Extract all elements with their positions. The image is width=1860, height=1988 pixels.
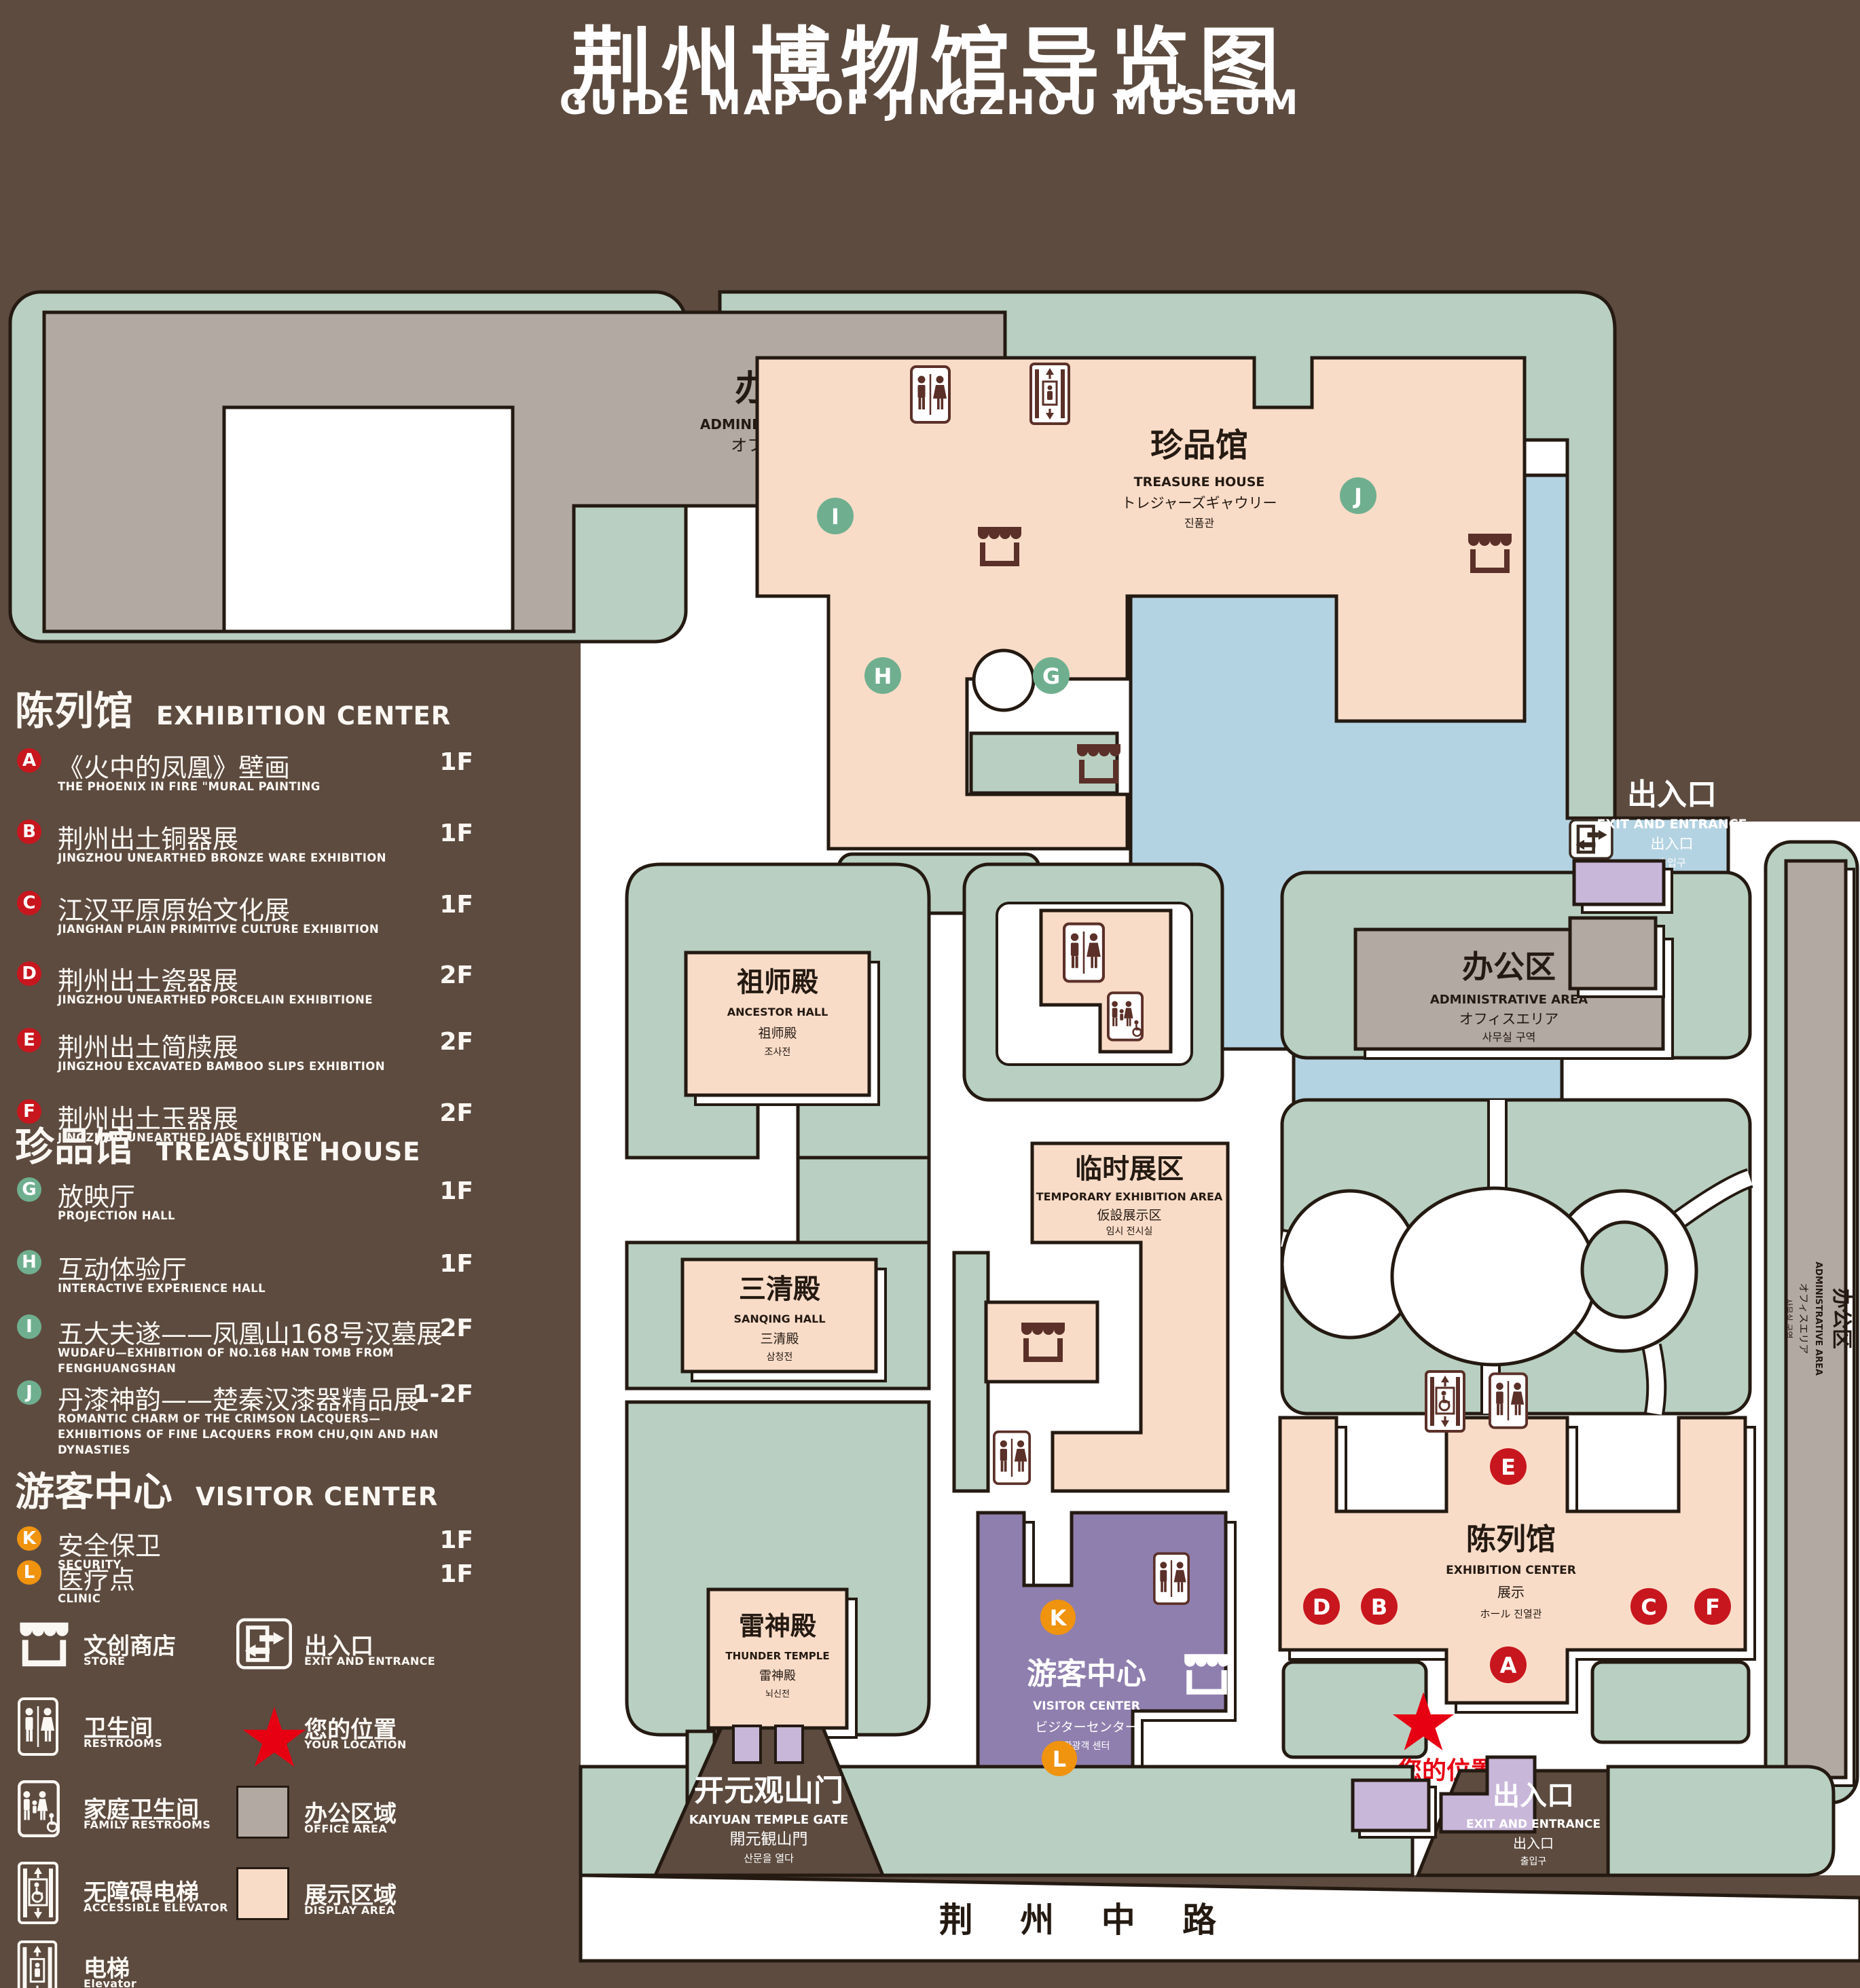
marker-F: F <box>1705 1594 1720 1620</box>
marker-B: B <box>1371 1594 1387 1620</box>
marker-L: L <box>1053 1746 1066 1772</box>
marker-badge: G <box>17 1177 41 1202</box>
sanqing-hall-label-zh: 三清殿 <box>739 1274 820 1305</box>
south-lawn <box>1608 1767 1834 1875</box>
svg-text:ADMINISTRATIVE AREA: ADMINISTRATIVE AREA <box>1813 1262 1823 1376</box>
sanqing-hall-label-kr: 삼청전 <box>767 1352 793 1363</box>
admin-center-label-en: ADMINISTRATIVE AREA <box>1430 993 1588 1007</box>
marker-E: E <box>1501 1454 1516 1480</box>
marker-C: C <box>1641 1594 1656 1620</box>
kaiyuan-gate-label-zh: 开元观山门 <box>694 1773 843 1808</box>
restrooms-icon <box>1490 1374 1527 1427</box>
svg-text:办公区: 办公区 <box>1829 1288 1853 1349</box>
floor-badge: 1F <box>439 891 473 919</box>
floor-badge: 1F <box>439 748 473 776</box>
sanqing-hall-label-en: SANQING HALL <box>733 1312 825 1325</box>
treasure-house-curved-notch <box>974 650 1034 710</box>
exhibition-center-label-en: EXHIBITION CENTER <box>1446 1564 1576 1577</box>
exit-se-label-kr: 출입구 <box>1520 1856 1547 1867</box>
garden-strip <box>798 1158 929 1242</box>
marker-badge: B <box>17 820 41 844</box>
treasure-house-green-bar <box>971 733 1117 793</box>
gate-building <box>1353 1780 1429 1830</box>
marker-badge: L <box>17 1560 41 1585</box>
kaiyuan-gate-label-en: KAIYUAN TEMPLE GATE <box>689 1813 849 1827</box>
legend-panel: 陈列馆 EXHIBITION CENTER A 《火中的凤凰》壁画 THE PH… <box>0 0 503 1988</box>
section-title-en: VISITOR CENTER <box>196 1482 438 1511</box>
visitor-center-label-zh: 游客中心 <box>1027 1657 1146 1691</box>
marker-J: J <box>1353 483 1362 509</box>
floor-badge: 1F <box>439 1560 473 1588</box>
legend-section-treasure-house: 珍品馆 TREASURE HOUSE <box>15 1115 420 1172</box>
gate-building <box>1574 861 1664 904</box>
location-star-icon <box>242 1707 307 1768</box>
marker-badge: H <box>17 1250 41 1274</box>
floor-badge: 2F <box>439 1314 473 1342</box>
restrooms-icon <box>17 1697 59 1756</box>
store-building <box>986 1302 1097 1382</box>
thunder-temple-label-kr: 뇌신전 <box>765 1689 790 1699</box>
svg-text:オフィスエリア: オフィスエリア <box>1798 1283 1810 1355</box>
floor-badge: 1F <box>439 820 473 847</box>
display-area-swatch <box>236 1867 289 1920</box>
section-title-en: TREASURE HOUSE <box>156 1137 420 1166</box>
floor-badge: 2F <box>439 961 473 989</box>
tea-label-zh: 临时展区 <box>1075 1154 1184 1185</box>
exit-ne-label-zh: 出入口 <box>1627 777 1717 812</box>
office-area-swatch <box>236 1786 289 1839</box>
marker-G: G <box>1042 663 1060 689</box>
family-restrooms-icon <box>1108 993 1142 1039</box>
exit-ne-label-jp: 出入口 <box>1651 836 1694 852</box>
marker-badge: J <box>17 1380 41 1405</box>
restrooms-icon <box>1154 1553 1188 1604</box>
accessible-elevator-icon <box>1426 1372 1464 1431</box>
restrooms-icon <box>911 367 949 422</box>
marker-badge: E <box>17 1028 41 1052</box>
sanqing-hall-label-jp: 三清殿 <box>760 1331 799 1346</box>
gate-pillar <box>776 1726 803 1763</box>
marker-A: A <box>1500 1653 1517 1678</box>
section-title-zh: 游客中心 <box>15 1460 172 1517</box>
ancestor-hall-label-jp: 祖师殿 <box>758 1026 797 1041</box>
exit-se-label-en: EXIT AND ENTRANCE <box>1466 1818 1601 1831</box>
legend-symbol-exit: 出入口 EXIT AND ENTRANCE <box>236 1618 292 1672</box>
legend-symbol-elevator: 电梯 Elevator <box>17 1940 58 1988</box>
legend-symbol-restrooms: 卫生间 RESTROOMS <box>17 1697 59 1759</box>
tea-green-bar <box>954 1253 988 1491</box>
admin-center-label-kr: 사무실 구역 <box>1482 1031 1536 1044</box>
marker-I: I <box>831 504 839 530</box>
marker-H: H <box>874 663 892 689</box>
tea-label-en: TEMPORARY EXHIBITION AREA <box>1036 1190 1223 1203</box>
exit-ne-label-en: EXIT AND ENTRANCE <box>1597 817 1747 832</box>
gate-pillar <box>733 1726 761 1763</box>
accessible-elevator-icon <box>17 1862 59 1924</box>
treasure-house-label-zh: 珍品馆 <box>1150 426 1248 464</box>
thunder-temple-label-en: THUNDER TEMPLE <box>725 1650 829 1662</box>
kaiyuan-gate-label-jp: 開元観山門 <box>730 1830 808 1848</box>
thunder-temple-label-jp: 雷神殿 <box>759 1669 796 1683</box>
store-icon <box>17 1619 71 1670</box>
exhibition-south-lawn <box>1283 1662 1426 1757</box>
marker-badge: D <box>17 961 41 986</box>
thunder-temple-label-zh: 雷神殿 <box>739 1611 816 1641</box>
floor-badge: 2F <box>439 1028 473 1056</box>
elevator-icon <box>17 1940 58 1988</box>
visitor-center-label-en: VISITOR CENTER <box>1033 1699 1140 1713</box>
ancestor-hall-label-zh: 祖师殿 <box>737 967 818 998</box>
floor-badge: 1-2F <box>412 1380 473 1408</box>
floor-badge: 1F <box>439 1526 473 1554</box>
restrooms-icon <box>1064 924 1104 982</box>
tea-label-kr: 임시 전시실 <box>1106 1226 1153 1237</box>
marker-badge: I <box>17 1314 41 1339</box>
treasure-house-label-kr: 진품관 <box>1184 517 1214 530</box>
kaiyuan-gate-label-kr: 산문을 열다 <box>744 1852 794 1864</box>
svg-text:사무실 구역: 사무실 구역 <box>1784 1298 1793 1338</box>
marker-badge: A <box>17 748 41 773</box>
tea-label-jp: 仮設展示区 <box>1097 1208 1161 1223</box>
legend-symbol-store: 文创商店 STORE <box>17 1619 71 1672</box>
road-label: 荆 州 中 路 <box>939 1900 1234 1940</box>
floor-badge: 2F <box>439 1099 473 1127</box>
exhibition-center-label-jp: 展示 <box>1497 1584 1525 1600</box>
exit-se-label-zh: 出入口 <box>1493 1780 1574 1811</box>
restrooms-icon <box>994 1432 1029 1484</box>
visitor-center-label-jp: ビジターセンター <box>1035 1720 1138 1735</box>
legend-symbol-your-location: 您的位置 YOUR LOCATION <box>242 1707 307 1771</box>
legend-symbol-accessible-elevator: 无障碍电梯 ACCESSIBLE ELEVATOR <box>17 1862 59 1927</box>
exhibition-center-label-jpkr: ホール 진열관 <box>1480 1608 1542 1620</box>
floor-badge: 1F <box>439 1250 473 1278</box>
exhibition-center-label-zh: 陈列馆 <box>1466 1522 1556 1557</box>
treasure-house-label-jp: トレジャーズギャウリー <box>1122 495 1277 511</box>
ancestor-hall-label-kr: 조사전 <box>765 1047 791 1058</box>
section-title-en: EXHIBITION CENTER <box>156 701 451 731</box>
small-office-building <box>1570 918 1656 989</box>
exhibition-south-lawn <box>1592 1662 1749 1742</box>
marker-K: K <box>1050 1605 1068 1631</box>
legend-section-visitor-center: 游客中心 VISITOR CENTER <box>15 1460 438 1517</box>
south-lawn <box>823 1767 1412 1875</box>
marker-badge: K <box>17 1526 41 1551</box>
guide-map-poster: 荆州博物馆导览图 GUIDE MAP OF JINGZHOU MUSEUM <box>0 0 1860 1988</box>
floor-badge: 1F <box>439 1177 473 1205</box>
elevator-icon <box>1031 364 1069 424</box>
marker-D: D <box>1313 1594 1331 1620</box>
marker-badge: C <box>17 891 41 915</box>
family-restrooms-icon <box>17 1780 60 1837</box>
admin-center-label-zh: 办公区 <box>1462 949 1556 985</box>
ancestor-hall-label-en: ANCESTOR HALL <box>727 1006 828 1018</box>
section-title-zh: 陈列馆 <box>15 679 133 736</box>
exit-icon <box>236 1618 292 1670</box>
legend-section-exhibition-center: 陈列馆 EXHIBITION CENTER <box>15 679 451 736</box>
admin-center-label-jp: オフィスエリア <box>1459 1011 1559 1027</box>
legend-symbol-family-restrooms: 家庭卫生间 FAMILY RESTROOMS <box>17 1780 60 1840</box>
exit-se-label-jp: 出入口 <box>1513 1835 1554 1852</box>
section-title-zh: 珍品馆 <box>15 1115 133 1172</box>
treasure-house-label-en: TREASURE HOUSE <box>1134 475 1265 490</box>
